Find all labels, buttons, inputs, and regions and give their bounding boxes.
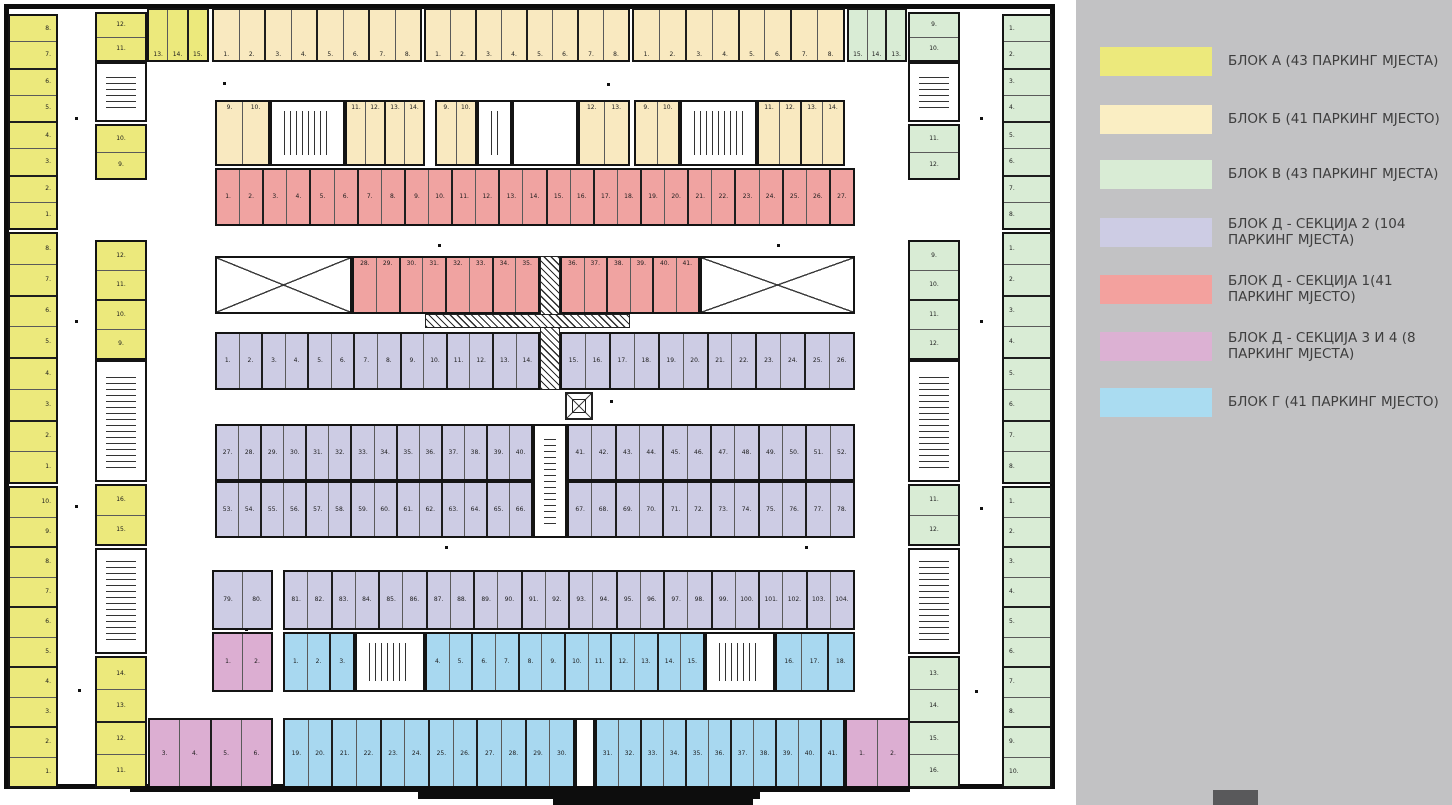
ramp-cross-area	[700, 256, 855, 314]
parking-stall-block-B: 1.	[214, 10, 240, 60]
stall-number: 59.	[358, 507, 368, 513]
parking-stall-block-D2: 84.	[356, 572, 380, 628]
parking-stall-block-D2: 2.	[240, 334, 264, 388]
parking-strip-right-inner-2: 9.10.11.12.	[908, 240, 960, 360]
stall-number: 15.	[193, 52, 203, 58]
hatched-shaft	[425, 314, 630, 328]
stall-number: 74.	[742, 507, 752, 513]
stall-number: 77.	[814, 507, 824, 513]
parking-stall-block-D2: 30.	[284, 426, 307, 479]
stall-number: 4.	[511, 52, 517, 58]
stall-number: 10.	[572, 659, 582, 665]
parking-stall-block-A: 14.	[168, 10, 188, 60]
parking-stall-block-A: 14.	[97, 658, 145, 690]
stall-number: 34.	[380, 450, 390, 456]
legend-color-swatch	[1100, 105, 1212, 134]
parking-stall-block-V: 12.	[910, 153, 958, 179]
stall-number: 3.	[271, 358, 277, 364]
stall-number: 40.	[516, 450, 526, 456]
parking-stall-block-B: 7.	[792, 10, 818, 60]
parking-stall-block-A: 1.	[10, 758, 56, 787]
parking-stall-block-D2: 3.	[263, 334, 286, 388]
column-marker	[975, 690, 978, 693]
stall-number: 2.	[1009, 529, 1015, 535]
parking-stall-block-D1: 2.	[240, 170, 264, 224]
parking-stall-block-D2: 40.	[510, 426, 531, 479]
stall-number: 11.	[764, 105, 774, 111]
parking-stall-block-D2: 95.	[618, 572, 641, 628]
parking-stall-block-D1: 1.	[217, 170, 240, 224]
stall-number: 13.	[153, 52, 163, 58]
parking-stall-block-A: 15.	[97, 516, 145, 545]
stall-number: 6.	[340, 358, 346, 364]
parking-stall-block-D2: 61.	[398, 483, 420, 536]
stall-number: 19.	[666, 358, 676, 364]
stall-number: 5.	[45, 105, 51, 111]
utility-room	[575, 718, 595, 790]
parking-stall-block-D2: 8.	[378, 334, 402, 388]
parking-stall-block-D1: 25.	[784, 170, 807, 224]
stall-number: 55.	[268, 507, 278, 513]
parking-strip-left-inner-1a: 12.11.	[95, 12, 147, 62]
parking-stall-block-G: 25.	[430, 720, 454, 788]
parking-stall-block-D2: 79.	[214, 572, 243, 628]
parking-stall-block-D2: 86.	[403, 572, 427, 628]
stall-number: 10.	[116, 312, 126, 318]
stall-number: 2.	[248, 194, 254, 200]
stall-number: 7.	[363, 358, 369, 364]
parking-stall-block-V: 16.	[910, 755, 958, 786]
stall-number: 44.	[646, 450, 656, 456]
parking-stall-block-D2: 6.	[332, 334, 356, 388]
stall-number: 5.	[223, 751, 229, 757]
stall-number: 12.	[587, 105, 597, 111]
stall-number: 9.	[1009, 739, 1015, 745]
parking-stall-block-B: 1.	[634, 10, 660, 60]
parking-stall-block-V: 11.	[910, 126, 958, 153]
parking-stall-block-D2: 63.	[443, 483, 465, 536]
parking-stall-block-D2: 103.	[808, 572, 831, 628]
stall-number: 11.	[351, 105, 361, 111]
stairwell	[908, 62, 960, 122]
parking-stall-block-D2: 14.	[517, 334, 539, 388]
parking-stall-block-B: 11.	[759, 102, 780, 164]
parking-stall-block-D2: 77.	[807, 483, 830, 536]
stall-number: 5.	[45, 339, 51, 345]
stall-number: 3.	[1009, 79, 1015, 85]
parking-stall-block-G: 2.	[308, 634, 332, 690]
parking-stall-block-D2: 23.	[757, 334, 781, 388]
parking-stall-block-A: 9.	[97, 330, 145, 358]
stall-number: 27.	[223, 450, 233, 456]
stall-number: 50.	[789, 450, 799, 456]
parking-stall-block-B: 7.	[370, 10, 396, 60]
parking-stall-block-D2: 51.	[807, 426, 830, 479]
legend-item: БЛОК А (43 ПАРКИНГ МЈЕСТА)	[1100, 47, 1445, 76]
stairwell	[908, 548, 960, 654]
parking-stall-block-D2: 59.	[352, 483, 374, 536]
parking-stall-block-D2: 49.	[760, 426, 783, 479]
parking-stall-block-D2: 37.	[443, 426, 465, 479]
stall-number: 95.	[624, 597, 634, 603]
parking-stall-block-B: 12.	[780, 102, 802, 164]
parking-strip-band2-a2: 11.12.13.14.	[345, 100, 425, 166]
stall-number: 9.	[414, 194, 420, 200]
parking-stall-block-D1: 14.	[523, 170, 547, 224]
parking-stall-block-D2: 19.	[660, 334, 684, 388]
stairwell	[355, 632, 425, 692]
stall-number: 11.	[116, 282, 126, 288]
parking-strip-right-inner-3a: 11.12.	[908, 484, 960, 546]
parking-strip-left-outer-3: 10.9.8.7.6.5.4.3.2.1.	[8, 486, 58, 788]
legend-panel: БЛОК А (43 ПАРКИНГ МЈЕСТА)БЛОК Б (41 ПАР…	[1076, 0, 1452, 805]
stall-number: 18.	[836, 659, 846, 665]
stall-number: 60.	[380, 507, 390, 513]
stall-number: 7.	[802, 52, 808, 58]
stall-number: 72.	[694, 507, 704, 513]
parking-stall-block-B: 3.	[687, 10, 713, 60]
stall-number: 11.	[595, 659, 605, 665]
parking-stall-block-B: 11.	[347, 102, 366, 164]
stall-number: 22.	[364, 751, 374, 757]
stall-number: 11.	[929, 497, 939, 503]
stall-number: 75.	[766, 507, 776, 513]
stall-number: 4.	[435, 659, 441, 665]
legend-color-swatch	[1100, 160, 1212, 189]
parking-stall-block-D2: 22.	[732, 334, 757, 388]
stall-number: 103.	[812, 597, 825, 603]
stall-number: 36.	[568, 261, 578, 267]
stall-number: 24.	[766, 194, 776, 200]
stall-number: 70.	[646, 507, 656, 513]
stall-number: 40.	[805, 751, 815, 757]
stall-number: 19.	[648, 194, 658, 200]
stall-number: 45.	[671, 450, 681, 456]
stall-number: 2.	[669, 52, 675, 58]
parking-stall-block-B: 5.	[740, 10, 766, 60]
parking-stall-block-D1: 19.	[642, 170, 665, 224]
parking-stall-block-D2: 24.	[781, 334, 806, 388]
parking-stall-block-G: 33.	[642, 720, 664, 788]
parking-stall-block-V: 8.	[1004, 203, 1050, 228]
parking-strip-lav-row2-right: 41.42.43.44.45.46.47.48.49.50.51.52.	[567, 424, 855, 481]
parking-stall-block-D1: 8.	[382, 170, 406, 224]
parking-strip-band2-b1: 9.10.	[435, 100, 477, 166]
parking-stall-block-G: 16.	[777, 634, 802, 690]
stall-number: 4.	[301, 52, 307, 58]
stall-number: 5.	[1009, 133, 1015, 139]
parking-stall-block-G: 1.	[285, 634, 308, 690]
parking-stall-block-D2: 71.	[664, 483, 687, 536]
parking-stall-block-V: 9.	[1004, 728, 1050, 758]
parking-stall-block-G: 17.	[802, 634, 828, 690]
stall-number: 3.	[275, 52, 281, 58]
stall-number: 13.	[507, 194, 517, 200]
stall-number: 12.	[476, 358, 486, 364]
parking-stall-block-D2: 29.	[262, 426, 284, 479]
parking-stall-block-D1: 5.	[311, 170, 334, 224]
parking-stall-block-D2: 12.	[470, 334, 494, 388]
parking-stall-block-D2: 89.	[475, 572, 498, 628]
parking-strip-band2-c1: 9.10.	[634, 100, 680, 166]
floor-plan: 8.7.6.5.4.3.2.1.8.7.6.5.4.3.2.1.10.9.8.7…	[0, 0, 1076, 805]
parking-stall-block-A: 10.	[97, 126, 145, 153]
parking-stall-block-D2: 96.	[641, 572, 665, 628]
parking-stall-block-V: 5.	[1004, 123, 1050, 149]
stall-number: 35.	[693, 751, 703, 757]
parking-stall-block-B: 9.	[217, 102, 243, 164]
stall-number: 11.	[929, 312, 939, 318]
parking-stall-block-A: 9.	[10, 518, 56, 549]
parking-stall-block-D2: 69.	[617, 483, 640, 536]
parking-stall-block-V: 12.	[910, 516, 958, 545]
parking-stall-block-D1: 34.	[494, 258, 517, 312]
stall-number: 6.	[254, 751, 260, 757]
stall-number: 12.	[929, 341, 939, 347]
parking-stall-block-D2: 55.	[262, 483, 284, 536]
parking-stall-block-D2: 74.	[735, 483, 759, 536]
column-marker	[980, 507, 983, 510]
stall-number: 6.	[481, 659, 487, 665]
parking-stall-block-G: 40.	[799, 720, 822, 788]
stall-number: 41.	[575, 450, 585, 456]
parking-stall-block-B: 2.	[451, 10, 477, 60]
stall-number: 6.	[45, 308, 51, 314]
stall-number: 12.	[482, 194, 492, 200]
parking-stall-block-V: 10.	[1004, 758, 1050, 787]
parking-stall-block-D2: 5.	[309, 334, 332, 388]
stall-number: 96.	[647, 597, 657, 603]
stall-number: 8.	[828, 52, 834, 58]
parking-stall-block-D1: 22.	[712, 170, 736, 224]
parking-stall-block-G: 29.	[527, 720, 551, 788]
stall-number: 52.	[837, 450, 847, 456]
parking-stall-block-D1: 33.	[470, 258, 494, 312]
parking-stall-block-B: 4.	[502, 10, 528, 60]
parking-stall-block-D1: 18.	[618, 170, 642, 224]
parking-stall-block-G: 37.	[732, 720, 754, 788]
column-marker	[78, 689, 81, 692]
parking-stall-block-B: 9.	[437, 102, 457, 164]
stall-number: 66.	[516, 507, 526, 513]
stall-number: 29.	[268, 450, 278, 456]
parking-stall-block-D2: 43.	[617, 426, 640, 479]
stall-number: 65.	[494, 507, 504, 513]
stall-number: 10.	[435, 194, 445, 200]
parking-stall-block-V: 1.	[1004, 234, 1050, 265]
stall-number: 35.	[522, 261, 532, 267]
stall-number: 84.	[362, 597, 372, 603]
stall-number: 8.	[45, 559, 51, 565]
stall-number: 91.	[529, 597, 539, 603]
parking-stall-block-D1: 13.	[500, 170, 523, 224]
stall-number: 14.	[530, 194, 540, 200]
stall-number: 1.	[859, 751, 865, 757]
stall-number: 3.	[1009, 559, 1015, 565]
parking-stall-block-B: 13.	[605, 102, 629, 164]
stall-number: 14.	[173, 52, 183, 58]
parking-stall-block-D34: 1.	[214, 634, 243, 690]
stall-number: 30.	[557, 751, 567, 757]
parking-strip-top-green: 15.14.13.	[847, 8, 907, 62]
stall-number: 71.	[671, 507, 681, 513]
parking-stall-block-D1: 16.	[571, 170, 595, 224]
stall-number: 11.	[929, 136, 939, 142]
stall-number: 3.	[696, 52, 702, 58]
parking-stall-block-A: 4.	[10, 359, 56, 390]
legend-label: БЛОК Д - СЕКЦИЈА 1(41 ПАРКИНГ МЈЕСТО)	[1228, 274, 1443, 306]
stall-number: 4.	[294, 358, 300, 364]
parking-stall-block-B: 6.	[344, 10, 371, 60]
stall-number: 92.	[552, 597, 562, 603]
parking-stall-block-D1: 9.	[406, 170, 429, 224]
stall-number: 58.	[335, 507, 345, 513]
parking-strip-blue-row1-b: 4.5.6.7.8.9.10.11.12.13.14.15.	[425, 632, 705, 692]
stall-number: 16.	[784, 659, 794, 665]
stall-number: 6.	[775, 52, 781, 58]
parking-stall-block-G: 36.	[709, 720, 732, 788]
legend-label: БЛОК В (43 ПАРКИНГ МЈЕСТА)	[1228, 167, 1443, 183]
column-marker	[777, 244, 780, 247]
parking-strip-top-orange-1: 1.2.3.4.5.6.7.8.	[212, 8, 422, 62]
parking-stall-block-B: 13.	[802, 102, 823, 164]
stairwell	[95, 360, 147, 482]
stall-number: 16.	[577, 194, 587, 200]
parking-stall-block-D2: 42.	[592, 426, 616, 479]
stall-number: 39.	[636, 261, 646, 267]
parking-stall-block-B: 7.	[579, 10, 604, 60]
stall-number: 26.	[837, 358, 847, 364]
stall-number: 7.	[367, 194, 373, 200]
parking-stall-block-V: 7.	[1004, 668, 1050, 698]
legend-item: БЛОК Б (41 ПАРКИНГ МЈЕСТО)	[1100, 105, 1445, 134]
stall-number: 13.	[500, 358, 510, 364]
stall-number: 104.	[835, 597, 848, 603]
legend-color-swatch	[1100, 47, 1212, 76]
parking-stall-block-G: 34.	[664, 720, 687, 788]
stall-number: 10.	[251, 105, 261, 111]
parking-strip-right-outer-3: 1.2.3.4.5.6.7.8.9.10.	[1002, 486, 1052, 788]
legend-color-swatch	[1100, 218, 1212, 247]
parking-stall-block-D2: 17.	[611, 334, 635, 388]
parking-stall-block-A: 1.	[10, 203, 56, 228]
parking-stall-block-D2: 53.	[217, 483, 239, 536]
stall-number: 7.	[45, 589, 51, 595]
stall-number: 2.	[316, 659, 322, 665]
parking-stall-block-V: 7.	[1004, 177, 1050, 203]
parking-stall-block-B: 12.	[366, 102, 386, 164]
parking-stall-block-B: 13.	[386, 102, 405, 164]
stall-number: 13.	[891, 52, 901, 58]
stall-number: 23.	[388, 751, 398, 757]
stall-number: 4.	[1009, 105, 1015, 111]
parking-stall-block-G: 26.	[454, 720, 479, 788]
stall-number: 61.	[403, 507, 413, 513]
stall-number: 98.	[695, 597, 705, 603]
parking-stall-block-V: 6.	[1004, 638, 1050, 669]
stall-number: 89.	[481, 597, 491, 603]
parking-stall-block-V: 11.	[910, 301, 958, 330]
parking-stall-block-D34: 6.	[242, 720, 271, 788]
parking-stall-block-V: 9.	[910, 14, 958, 38]
stall-number: 5.	[749, 52, 755, 58]
parking-stall-block-D2: 44.	[640, 426, 664, 479]
stall-number: 14.	[409, 105, 419, 111]
parking-stall-block-A: 9.	[97, 153, 145, 179]
stall-number: 25.	[790, 194, 800, 200]
parking-stall-block-D2: 100.	[736, 572, 760, 628]
parking-stall-block-D1: 32.	[447, 258, 470, 312]
parking-stall-block-D2: 39.	[488, 426, 510, 479]
parking-stall-block-D2: 33.	[352, 426, 374, 479]
parking-stall-block-G: 38.	[754, 720, 777, 788]
stall-number: 16.	[929, 768, 939, 774]
stall-number: 53.	[223, 507, 233, 513]
parking-stall-block-V: 10.	[910, 38, 958, 61]
parking-strip-left-inner-1b: 10.9.	[95, 124, 147, 180]
legend-color-swatch	[1100, 332, 1212, 361]
stall-number: 40.	[660, 261, 670, 267]
parking-stall-block-V: 3.	[1004, 548, 1050, 578]
parking-stall-block-G: 4.	[427, 634, 450, 690]
parking-stall-block-G: 15.	[681, 634, 703, 690]
stall-number: 18.	[641, 358, 651, 364]
stall-number: 94.	[600, 597, 610, 603]
parking-stall-block-A: 8.	[10, 548, 56, 578]
stall-number: 3.	[486, 52, 492, 58]
parking-stall-block-D34: 5.	[212, 720, 242, 788]
parking-stall-block-V: 6.	[1004, 390, 1050, 422]
stall-number: 22.	[719, 194, 729, 200]
parking-stall-block-D2: 64.	[465, 483, 488, 536]
stall-number: 4.	[296, 194, 302, 200]
parking-stall-block-D2: 68.	[592, 483, 616, 536]
column-marker	[75, 320, 78, 323]
stall-number: 28.	[245, 450, 255, 456]
parking-stall-block-A: 7.	[10, 42, 56, 69]
stall-number: 22.	[739, 358, 749, 364]
parking-stall-block-D1: 37.	[585, 258, 609, 312]
stall-number: 1.	[45, 212, 51, 218]
stall-number: 2.	[45, 739, 51, 745]
stall-number: 9.	[550, 659, 556, 665]
stall-number: 6.	[1009, 159, 1015, 165]
column-marker	[245, 628, 248, 631]
stall-number: 99.	[719, 597, 729, 603]
stall-number: 37.	[738, 751, 748, 757]
stall-number: 7.	[45, 277, 51, 283]
parking-stall-block-B: 6.	[765, 10, 792, 60]
parking-stall-block-D2: 9.	[402, 334, 425, 388]
parking-stall-block-A: 2.	[10, 177, 56, 203]
parking-stall-block-B: 6.	[553, 10, 579, 60]
stall-number: 9.	[443, 105, 449, 111]
parking-stall-block-D1: 23.	[736, 170, 759, 224]
stall-number: 3.	[339, 659, 345, 665]
parking-stall-block-G: 41.	[822, 720, 843, 788]
parking-stall-block-B: 2.	[240, 10, 267, 60]
parking-strip-top-yellow: 13.14.15.	[147, 8, 209, 62]
parking-stall-block-V: 6.	[1004, 149, 1050, 176]
stairwell	[908, 360, 960, 482]
parking-stall-block-D1: 4.	[287, 170, 311, 224]
stall-number: 6.	[1009, 649, 1015, 655]
parking-stall-block-D2: 7.	[355, 334, 378, 388]
parking-stall-block-D2: 92.	[546, 572, 570, 628]
stall-number: 8.	[386, 358, 392, 364]
parking-stall-block-D1: 6.	[335, 170, 359, 224]
stall-number: 7.	[379, 52, 385, 58]
